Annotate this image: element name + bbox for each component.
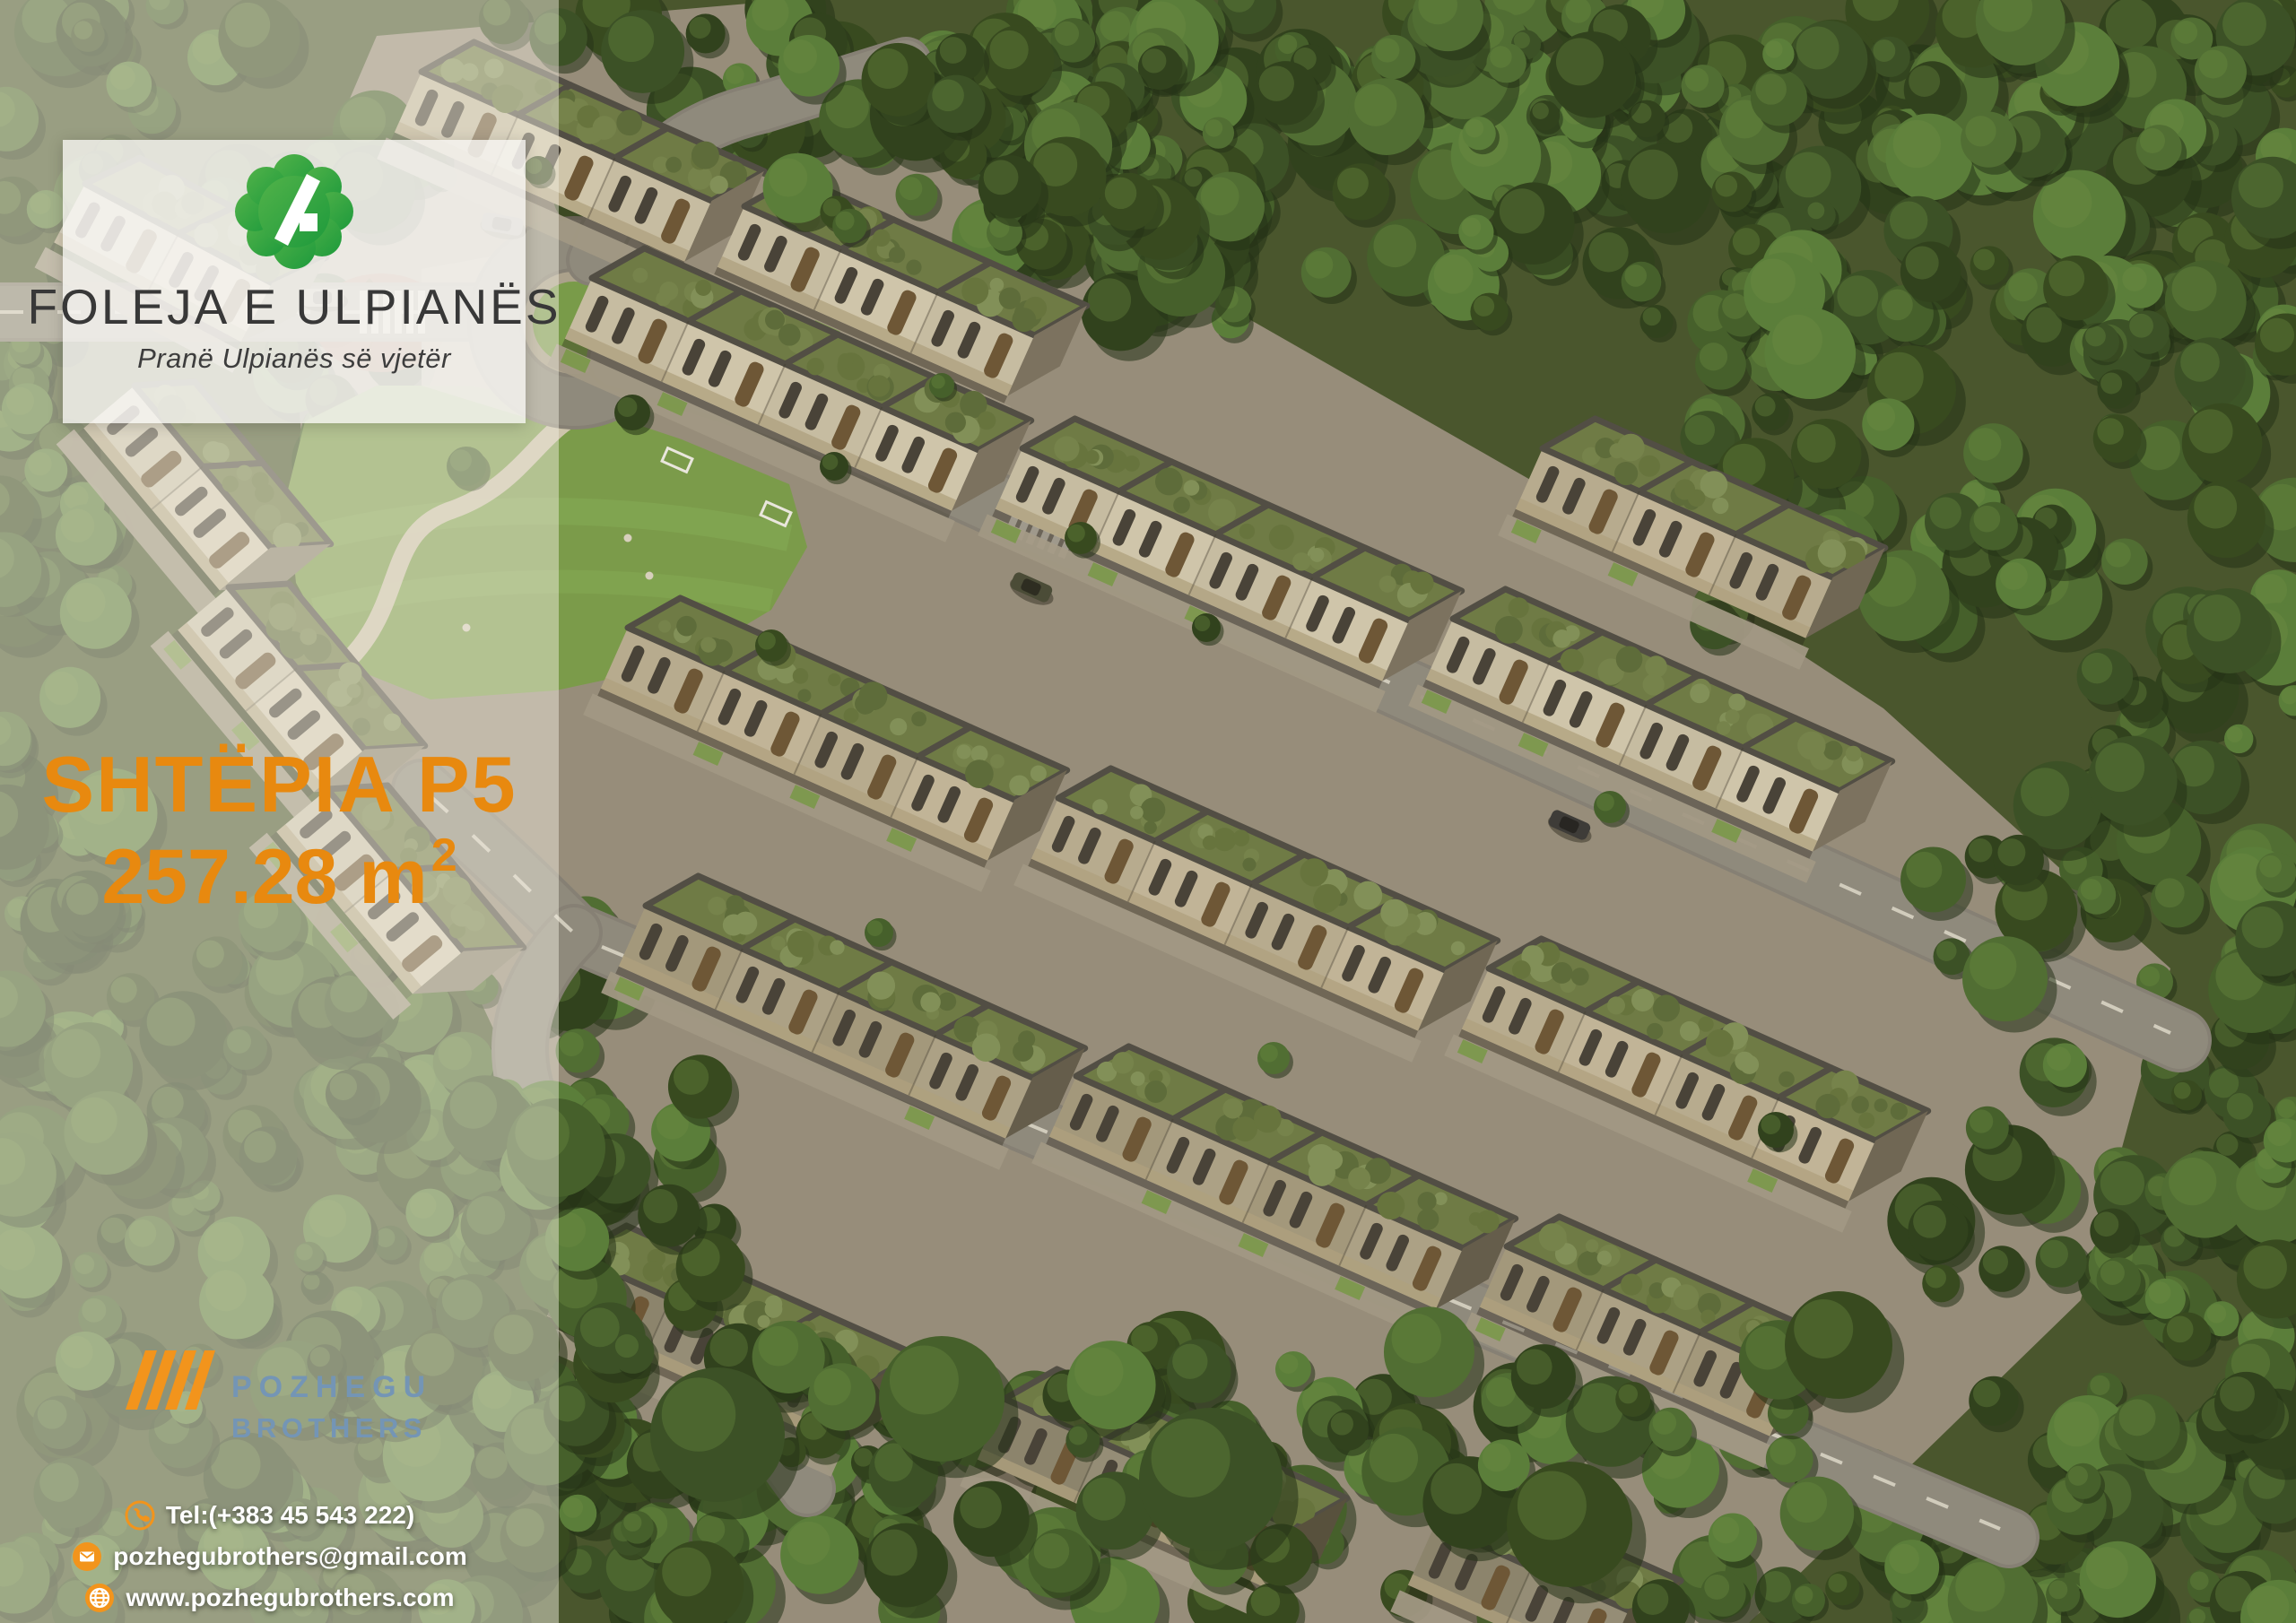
listing-area-superscript: 2 [431, 829, 457, 881]
developer-name-line1: POZHEGU [231, 1370, 432, 1405]
brand-panel: FOLEJA E ULPIANËS Pranë Ulpianës së vjet… [63, 140, 526, 423]
brand-title: FOLEJA E ULPIANËS [27, 278, 561, 335]
contact-website-text: www.pozhegubrothers.com [126, 1584, 454, 1612]
contact-email-text: pozhegubrothers@gmail.com [113, 1542, 466, 1571]
developer-name: POZHEGU BROTHERS [231, 1370, 432, 1445]
listing-title: SHTËPIA P5 [0, 744, 559, 825]
contact-website[interactable]: www.pozhegubrothers.com [0, 1580, 538, 1616]
contact-email[interactable]: pozhegubrothers@gmail.com [0, 1539, 538, 1575]
brand-tagline: Pranë Ulpianës së vjetër [137, 343, 451, 375]
developer-name-line2: BROTHERS [231, 1412, 432, 1445]
listing-area-value: 257.28 m [101, 834, 427, 920]
envelope-icon [71, 1541, 103, 1573]
phone-icon [124, 1499, 156, 1532]
contact-block: Tel:(+383 45 543 222) pozhegubrothers@gm… [0, 1497, 538, 1616]
contact-phone[interactable]: Tel:(+383 45 543 222) [0, 1497, 538, 1533]
four-slashes-icon [126, 1350, 215, 1410]
clover-flower-icon [233, 154, 355, 269]
developer-logo: POZHEGU BROTHERS [126, 1350, 432, 1445]
globe-icon [83, 1582, 116, 1614]
listing-info: SHTËPIA P5 257.28 m2 [0, 744, 559, 916]
listing-area: 257.28 m2 [0, 832, 559, 917]
contact-phone-text: Tel:(+383 45 543 222) [166, 1501, 414, 1530]
